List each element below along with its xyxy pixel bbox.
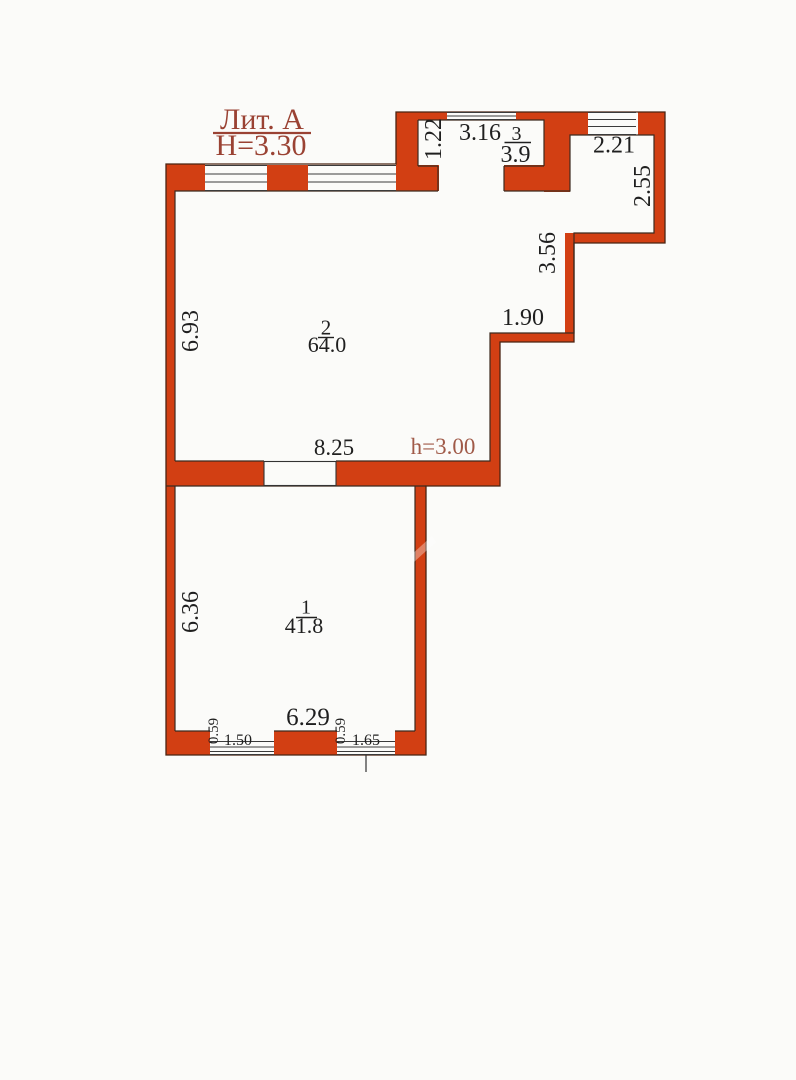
svg-text:8.25: 8.25 [314, 435, 354, 460]
svg-text:1.50: 1.50 [224, 732, 252, 749]
svg-text:6.29: 6.29 [286, 704, 330, 731]
svg-text:6.36: 6.36 [178, 591, 204, 633]
svg-text:1.22: 1.22 [421, 118, 447, 160]
svg-text:3.56: 3.56 [535, 232, 561, 274]
svg-text:2.21: 2.21 [593, 133, 635, 159]
svg-text:3.16: 3.16 [459, 120, 501, 146]
svg-text:Н=3.30: Н=3.30 [215, 129, 306, 162]
svg-text:0.59: 0.59 [333, 718, 349, 744]
svg-text:64.0: 64.0 [308, 332, 347, 357]
svg-text:41.8: 41.8 [285, 613, 324, 638]
svg-text:6.93: 6.93 [178, 310, 204, 352]
svg-text:1.90: 1.90 [502, 305, 544, 331]
svg-text:2.55: 2.55 [630, 165, 656, 207]
svg-text:3.9: 3.9 [501, 142, 531, 168]
svg-text:0.59: 0.59 [206, 718, 222, 744]
svg-text:h=3.00: h=3.00 [411, 434, 476, 459]
svg-text:1.65: 1.65 [352, 732, 380, 749]
